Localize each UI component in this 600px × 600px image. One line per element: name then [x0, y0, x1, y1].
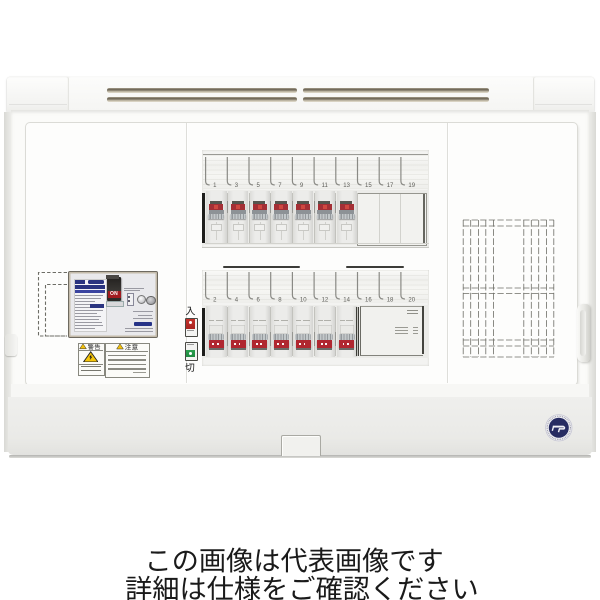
- svg-text:12: 12: [322, 298, 329, 304]
- svg-text:19: 19: [408, 183, 415, 189]
- svg-text:7: 7: [278, 183, 282, 189]
- svg-text:6: 6: [257, 298, 261, 304]
- svg-text:11: 11: [322, 183, 329, 189]
- svg-text:1: 1: [213, 183, 217, 189]
- svg-text:16: 16: [365, 298, 372, 304]
- svg-text:18: 18: [387, 298, 394, 304]
- svg-text:13: 13: [343, 183, 350, 189]
- svg-text:4: 4: [235, 298, 239, 304]
- svg-text:9: 9: [300, 183, 304, 189]
- svg-text:8: 8: [278, 298, 282, 304]
- svg-text:3: 3: [235, 183, 239, 189]
- svg-text:17: 17: [387, 183, 394, 189]
- svg-text:5: 5: [257, 183, 261, 189]
- svg-text:2: 2: [213, 298, 217, 304]
- svg-text:20: 20: [408, 298, 415, 304]
- svg-text:14: 14: [343, 298, 350, 304]
- svg-text:10: 10: [300, 298, 307, 304]
- svg-text:15: 15: [365, 183, 372, 189]
